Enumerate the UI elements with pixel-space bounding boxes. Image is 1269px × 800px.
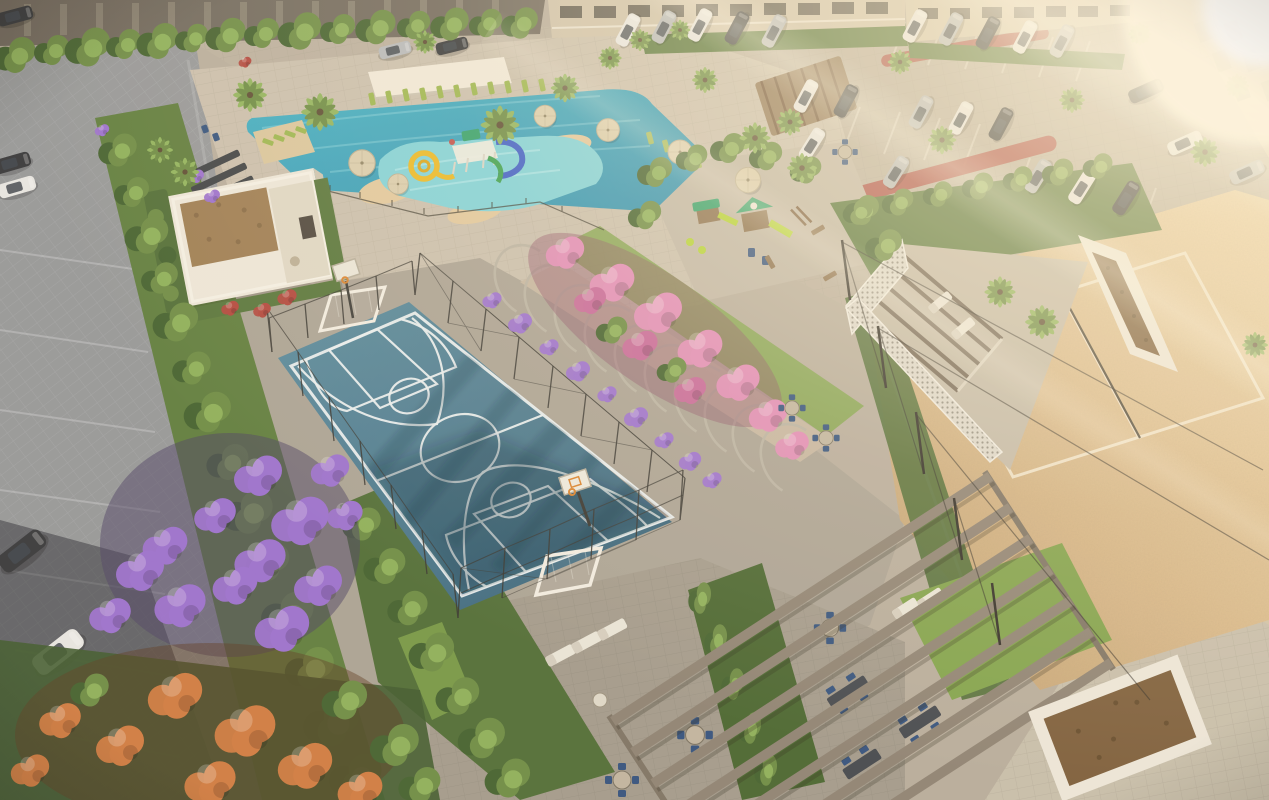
side-table: [593, 693, 607, 707]
aerial-rendering: North parking lot West parking lot: [0, 0, 1269, 800]
scene-canvas: North parking lot West parking lot: [0, 0, 1269, 800]
